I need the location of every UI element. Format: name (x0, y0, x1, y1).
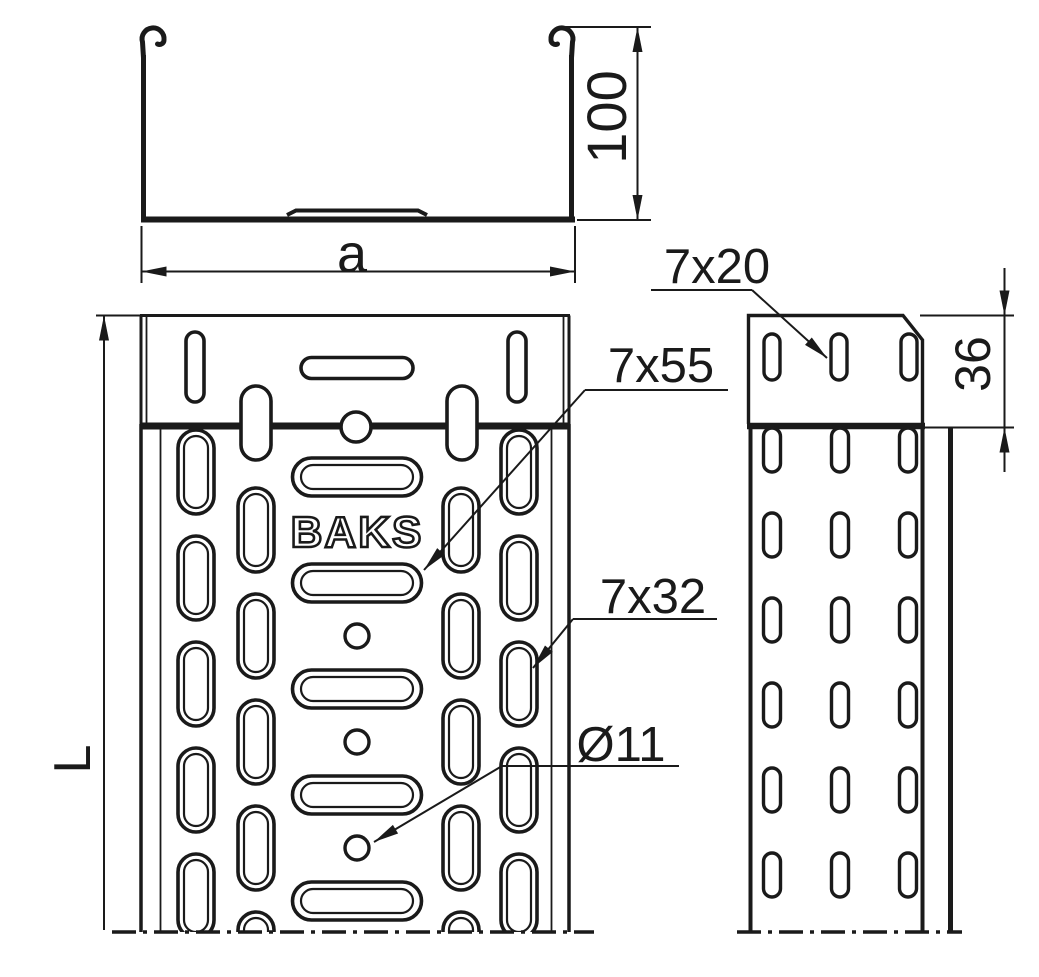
dimension-100: 100 (566, 27, 651, 220)
long-slot (293, 564, 422, 602)
joint-slot (447, 386, 477, 460)
side-wall-perforation (764, 334, 918, 897)
long-slot (293, 882, 422, 920)
side-slot (178, 536, 214, 620)
round-hole (345, 624, 369, 648)
wall-slot (900, 428, 917, 472)
wall-slot (832, 853, 849, 897)
arrowhead-right (550, 267, 575, 277)
connector-slot-callout-label: 7x20 (664, 240, 770, 294)
wall-slot (764, 768, 781, 812)
side-slot (238, 912, 274, 977)
joint-hole (341, 412, 371, 442)
side-slot (501, 854, 537, 938)
round-hole (345, 730, 369, 754)
side-slot (501, 748, 537, 832)
side-slot (443, 912, 479, 977)
arrowhead-left (142, 267, 167, 277)
wall-slot (900, 513, 917, 557)
joint-slot (241, 386, 271, 460)
callout-7x32: 7x32 (533, 570, 717, 668)
dimension-a: a (142, 224, 576, 284)
side-slot (178, 748, 214, 832)
left-edge-hook (142, 28, 164, 58)
wall-slot (832, 598, 849, 642)
width-dim-label: a (337, 224, 368, 284)
length-dim-label: L (44, 745, 102, 774)
long-slot (293, 670, 422, 708)
hole-callout-label: Ø11 (577, 718, 666, 772)
side-slot (178, 430, 214, 514)
cable-tray-technical-drawing: 100 a (0, 0, 1039, 977)
round-hole (345, 836, 369, 860)
connector-slot (508, 332, 526, 402)
connector-slot (901, 334, 917, 380)
arrowhead-down (633, 195, 643, 220)
arrowhead-up (99, 316, 109, 341)
arrowhead-up (633, 27, 643, 52)
side-slot (238, 594, 274, 678)
wall-slot (900, 768, 917, 812)
connector-band-perforation (186, 332, 526, 460)
side-slot (178, 854, 214, 938)
wall-slot (900, 683, 917, 727)
wall-slot (764, 513, 781, 557)
wall-slot (900, 853, 917, 897)
wall-slot (832, 428, 849, 472)
long-slot-callout-label: 7x55 (608, 339, 714, 393)
drawing-canvas: 100 a (0, 0, 1039, 977)
side-slot (501, 642, 537, 726)
long-slot (293, 776, 422, 814)
long-slot (293, 458, 422, 496)
wall-slot (764, 853, 781, 897)
side-slot (443, 806, 479, 890)
connector-slot (764, 334, 780, 380)
drawing-root: 100 a (44, 27, 1014, 977)
side-slot (238, 806, 274, 890)
wall-slot (764, 683, 781, 727)
brand-embossing-label: BAKS (291, 508, 424, 557)
connector-slot (186, 332, 204, 402)
flange-height-dim-label: 36 (945, 336, 1001, 392)
bottom-emboss-rib (287, 211, 427, 216)
wall-slot (832, 768, 849, 812)
height-dim-label: 100 (575, 70, 638, 163)
side-slot (178, 642, 214, 726)
arrowhead-down (1000, 291, 1010, 316)
side-slot (443, 594, 479, 678)
cross-section-view: 100 a (141, 27, 651, 284)
connector-slot (831, 334, 847, 380)
side-slot (238, 700, 274, 784)
arrowhead (374, 825, 398, 842)
side-slot-callout-label: 7x32 (600, 570, 706, 624)
right-edge-hook (551, 28, 573, 58)
wall-slot (764, 428, 781, 472)
wall-slot (764, 598, 781, 642)
connector-long-slot (301, 358, 413, 379)
dimension-36: 36 (920, 268, 1014, 472)
side-slot (501, 430, 537, 514)
arrowhead-up (1000, 428, 1010, 453)
wall-slot (832, 513, 849, 557)
side-slot (501, 536, 537, 620)
plan-view: BAKS L 7x55 7x32 (44, 316, 728, 977)
side-slot (238, 488, 274, 572)
wall-slot (832, 683, 849, 727)
wall-slot (900, 598, 917, 642)
dimension-L: L (44, 316, 141, 931)
tray-profile-outline (141, 28, 575, 220)
side-slot (443, 700, 479, 784)
